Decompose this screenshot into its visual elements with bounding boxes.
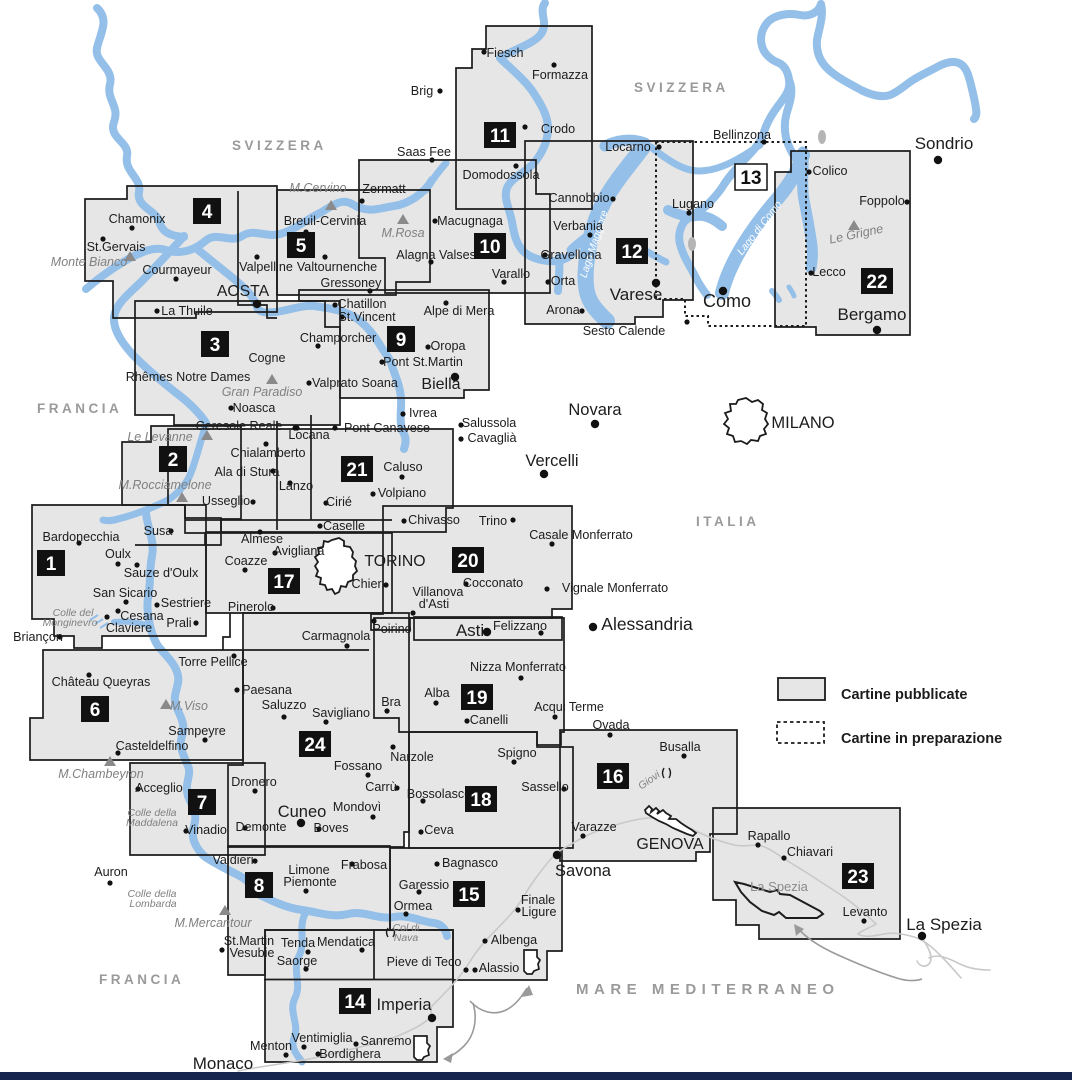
svg-text:17: 17 bbox=[273, 572, 294, 593]
svg-text:Saas Fee: Saas Fee bbox=[397, 145, 451, 159]
svg-text:Torre Pellice: Torre Pellice bbox=[178, 655, 247, 669]
svg-text:GENOVA: GENOVA bbox=[636, 836, 704, 853]
svg-text:Dronero: Dronero bbox=[231, 775, 277, 789]
svg-text:Chiavari: Chiavari bbox=[787, 845, 833, 859]
svg-text:M.Rosa: M.Rosa bbox=[381, 226, 424, 240]
svg-text:Orta: Orta bbox=[551, 274, 576, 288]
svg-text:Biella: Biella bbox=[421, 376, 460, 393]
svg-text:Courmayeur: Courmayeur bbox=[142, 263, 211, 277]
svg-text:Oulx: Oulx bbox=[105, 547, 132, 561]
svg-text:M.Cervino: M.Cervino bbox=[290, 181, 347, 195]
svg-text:Carrù: Carrù bbox=[365, 780, 397, 794]
svg-text:10: 10 bbox=[479, 237, 500, 258]
svg-text:Vesubie: Vesubie bbox=[230, 946, 275, 960]
svg-text:Alessandria: Alessandria bbox=[601, 614, 693, 634]
svg-text:Narzole: Narzole bbox=[390, 750, 433, 764]
svg-text:Como: Como bbox=[703, 291, 751, 311]
svg-text:Alba: Alba bbox=[424, 686, 449, 700]
svg-text:Mendatica: Mendatica bbox=[317, 935, 375, 949]
svg-text:Spigno: Spigno bbox=[497, 746, 536, 760]
svg-text:Usseglio: Usseglio bbox=[202, 494, 250, 508]
svg-text:Caselle: Caselle bbox=[323, 519, 365, 533]
svg-text:Piemonte: Piemonte bbox=[283, 875, 336, 889]
svg-text:Fossano: Fossano bbox=[334, 759, 382, 773]
svg-text:FRANCIA: FRANCIA bbox=[37, 401, 122, 416]
svg-text:Savigliano: Savigliano bbox=[312, 706, 370, 720]
svg-text:TORINO: TORINO bbox=[364, 553, 425, 570]
svg-text:Acceglio: Acceglio bbox=[135, 781, 183, 795]
svg-text:Busalla: Busalla bbox=[659, 740, 700, 754]
svg-text:Oropa: Oropa bbox=[430, 339, 465, 353]
svg-text:Menton: Menton bbox=[250, 1039, 292, 1053]
svg-text:1: 1 bbox=[46, 554, 57, 575]
svg-text:Arona: Arona bbox=[546, 303, 580, 317]
svg-text:Sassello: Sassello bbox=[521, 780, 569, 794]
svg-text:FRANCIA: FRANCIA bbox=[99, 972, 184, 987]
svg-text:5: 5 bbox=[296, 236, 307, 257]
svg-text:Bossolasco: Bossolasco bbox=[407, 787, 471, 801]
svg-text:Frabosa: Frabosa bbox=[341, 858, 387, 872]
svg-text:Garessio: Garessio bbox=[399, 878, 449, 892]
svg-text:Colico: Colico bbox=[813, 164, 848, 178]
svg-text:Alassio: Alassio bbox=[479, 961, 520, 975]
svg-text:Caluso: Caluso bbox=[383, 460, 422, 474]
svg-text:Avigliana: Avigliana bbox=[274, 544, 325, 558]
svg-text:Paesana: Paesana bbox=[242, 683, 292, 697]
svg-text:Monte Bianco: Monte Bianco bbox=[51, 255, 127, 269]
svg-text:Mondovì: Mondovì bbox=[333, 800, 381, 814]
svg-text:20: 20 bbox=[457, 551, 478, 572]
svg-text:Breuil-Cervinia: Breuil-Cervinia bbox=[284, 214, 367, 228]
svg-text:Valpelline: Valpelline bbox=[239, 260, 293, 274]
svg-text:14: 14 bbox=[344, 992, 366, 1013]
svg-text:Sondrio: Sondrio bbox=[915, 134, 974, 153]
svg-text:Alagna Valsesia: Alagna Valsesia bbox=[396, 248, 485, 262]
svg-text:Tenda: Tenda bbox=[281, 936, 315, 950]
svg-text:8: 8 bbox=[254, 876, 265, 897]
svg-text:2: 2 bbox=[168, 450, 179, 471]
svg-text:SVIZZERA: SVIZZERA bbox=[634, 80, 729, 95]
svg-text:Bagnasco: Bagnasco bbox=[442, 856, 498, 870]
svg-text:Cartine in preparazione: Cartine in preparazione bbox=[841, 731, 1002, 747]
svg-text:Locana: Locana bbox=[288, 428, 329, 442]
svg-text:Ivrea: Ivrea bbox=[409, 406, 437, 420]
svg-text:Ventimiglia: Ventimiglia bbox=[292, 1031, 353, 1045]
svg-text:M.Mercantour: M.Mercantour bbox=[174, 916, 252, 930]
svg-text:Vercelli: Vercelli bbox=[525, 452, 578, 470]
svg-text:6: 6 bbox=[90, 700, 101, 721]
svg-text:Levanto: Levanto bbox=[843, 905, 888, 919]
svg-text:11: 11 bbox=[490, 126, 511, 147]
svg-text:24: 24 bbox=[304, 735, 326, 756]
svg-text:Pinerolo: Pinerolo bbox=[228, 600, 274, 614]
svg-text:Ceresole Reale: Ceresole Reale bbox=[196, 419, 283, 433]
svg-text:MARE MEDITERRANEO: MARE MEDITERRANEO bbox=[576, 981, 840, 998]
svg-text:Pont Canavese: Pont Canavese bbox=[344, 421, 430, 435]
svg-text:Carmagnola: Carmagnola bbox=[302, 629, 371, 643]
svg-text:La Spezia: La Spezia bbox=[750, 879, 809, 894]
svg-text:9: 9 bbox=[396, 330, 407, 351]
svg-text:Brig: Brig bbox=[411, 84, 433, 98]
svg-text:St.Vincent: St.Vincent bbox=[338, 310, 396, 324]
svg-text:Crodo: Crodo bbox=[541, 122, 575, 136]
svg-text:Chatillon: Chatillon bbox=[337, 297, 386, 311]
svg-text:Trino: Trino bbox=[479, 514, 507, 528]
svg-text:Ceva: Ceva bbox=[424, 823, 453, 837]
svg-text:Sesto Calende: Sesto Calende bbox=[583, 324, 666, 338]
svg-text:Nava: Nava bbox=[394, 932, 419, 944]
svg-text:Volpiano: Volpiano bbox=[378, 486, 426, 500]
svg-text:Asti: Asti bbox=[456, 621, 484, 640]
svg-text:Prali: Prali bbox=[166, 616, 191, 630]
svg-text:Valtournenche: Valtournenche bbox=[297, 260, 377, 274]
svg-text:Cogne: Cogne bbox=[248, 351, 285, 365]
svg-text:Canelli: Canelli bbox=[470, 713, 509, 727]
svg-text:M.Rocciamelone: M.Rocciamelone bbox=[118, 478, 211, 492]
svg-text:Claviere: Claviere bbox=[106, 621, 152, 635]
svg-text:12: 12 bbox=[621, 242, 642, 263]
svg-text:Cuneo: Cuneo bbox=[278, 803, 327, 821]
svg-text:Formazza: Formazza bbox=[532, 68, 588, 82]
svg-text:Valprato Soana: Valprato Soana bbox=[312, 376, 398, 390]
svg-text:Bellinzona: Bellinzona bbox=[713, 128, 771, 142]
svg-text:Lugano: Lugano bbox=[672, 197, 714, 211]
svg-text:Acqui Terme: Acqui Terme bbox=[534, 700, 604, 714]
svg-text:4: 4 bbox=[202, 202, 213, 223]
svg-text:Varazze: Varazze bbox=[571, 820, 616, 834]
svg-text:Bordighera: Bordighera bbox=[319, 1047, 381, 1061]
svg-text:La Thuile: La Thuile bbox=[161, 304, 213, 318]
svg-text:d'Asti: d'Asti bbox=[419, 597, 449, 611]
svg-text:Gravellona: Gravellona bbox=[541, 248, 602, 262]
svg-text:Sauze d'Oulx: Sauze d'Oulx bbox=[124, 566, 199, 580]
svg-text:MILANO: MILANO bbox=[771, 414, 834, 432]
svg-text:Albenga: Albenga bbox=[491, 933, 537, 947]
svg-text:Fiesch: Fiesch bbox=[486, 46, 523, 60]
svg-text:16: 16 bbox=[602, 767, 623, 788]
svg-text:Château Queyras: Château Queyras bbox=[52, 675, 151, 689]
svg-text:Zermatt: Zermatt bbox=[362, 182, 406, 196]
svg-text:Susa: Susa bbox=[144, 524, 173, 538]
svg-text:Ala di Stura: Ala di Stura bbox=[214, 465, 279, 479]
svg-text:Cavaglià: Cavaglià bbox=[467, 431, 516, 445]
svg-text:18: 18 bbox=[470, 790, 491, 811]
svg-text:Rhêmes Notre Dames: Rhêmes Notre Dames bbox=[126, 370, 251, 384]
svg-text:La Spezia: La Spezia bbox=[906, 915, 982, 934]
svg-text:Chieri: Chieri bbox=[352, 577, 385, 591]
svg-text:Saluzzo: Saluzzo bbox=[262, 698, 307, 712]
svg-text:Lecco: Lecco bbox=[812, 265, 846, 279]
svg-text:7: 7 bbox=[197, 793, 208, 814]
svg-text:Chialamberto: Chialamberto bbox=[231, 446, 306, 460]
svg-text:AOSTA: AOSTA bbox=[217, 283, 270, 300]
svg-text:Salussola: Salussola bbox=[462, 416, 517, 430]
svg-text:Poirino: Poirino bbox=[372, 622, 411, 636]
svg-text:San Sicario: San Sicario bbox=[93, 586, 157, 600]
svg-text:Cannobbio: Cannobbio bbox=[549, 191, 610, 205]
svg-text:Chamonix: Chamonix bbox=[109, 212, 166, 226]
svg-text:Novara: Novara bbox=[568, 401, 622, 419]
svg-text:23: 23 bbox=[847, 867, 868, 888]
svg-text:Rapallo: Rapallo bbox=[748, 829, 791, 843]
svg-text:Domodossola: Domodossola bbox=[462, 168, 539, 182]
svg-text:Champorcher: Champorcher bbox=[300, 331, 376, 345]
svg-text:Monaco: Monaco bbox=[193, 1054, 253, 1073]
svg-text:SVIZZERA: SVIZZERA bbox=[232, 138, 327, 153]
svg-text:Lanzo: Lanzo bbox=[279, 479, 313, 493]
svg-text:Varallo: Varallo bbox=[492, 267, 530, 281]
svg-text:Savona: Savona bbox=[555, 862, 612, 880]
svg-text:Maddalena: Maddalena bbox=[126, 817, 178, 829]
svg-text:Casteldelfino: Casteldelfino bbox=[116, 739, 189, 753]
svg-text:Valdieri: Valdieri bbox=[212, 853, 253, 867]
svg-text:Ormea: Ormea bbox=[394, 899, 433, 913]
svg-text:Noasca: Noasca bbox=[233, 401, 276, 415]
svg-text:Vignale Monferrato: Vignale Monferrato bbox=[562, 581, 668, 595]
svg-text:Boves: Boves bbox=[313, 821, 348, 835]
svg-text:Locarno: Locarno bbox=[605, 140, 651, 154]
svg-text:22: 22 bbox=[866, 272, 887, 293]
svg-text:ITALIA: ITALIA bbox=[696, 514, 760, 529]
svg-text:21: 21 bbox=[346, 460, 368, 481]
svg-text:Le Levanne: Le Levanne bbox=[127, 430, 192, 444]
svg-text:19: 19 bbox=[466, 688, 487, 709]
svg-text:Sampeyre: Sampeyre bbox=[168, 724, 225, 738]
svg-text:Bra: Bra bbox=[381, 695, 401, 709]
svg-text:3: 3 bbox=[210, 335, 221, 356]
svg-text:Lombarda: Lombarda bbox=[129, 898, 176, 910]
svg-text:Monginevro: Monginevro bbox=[43, 617, 98, 629]
svg-text:Bardonecchia: Bardonecchia bbox=[42, 530, 119, 544]
svg-text:Casale Monferrato: Casale Monferrato bbox=[529, 528, 633, 542]
svg-text:M.Chambeyron: M.Chambeyron bbox=[58, 767, 143, 781]
svg-text:Gran Paradiso: Gran Paradiso bbox=[222, 385, 303, 399]
svg-text:Verbania: Verbania bbox=[553, 219, 603, 233]
svg-text:13: 13 bbox=[740, 168, 761, 189]
svg-text:Vinadio: Vinadio bbox=[185, 823, 227, 837]
svg-text:Pieve di Teco: Pieve di Teco bbox=[387, 955, 462, 969]
svg-text:Sestriere: Sestriere bbox=[161, 596, 211, 610]
svg-text:Macugnaga: Macugnaga bbox=[437, 214, 503, 228]
svg-text:Saorge: Saorge bbox=[277, 954, 318, 968]
svg-text:Cartine pubblicate: Cartine pubblicate bbox=[841, 687, 968, 703]
svg-text:Briançon: Briançon bbox=[13, 630, 63, 644]
svg-text:Varese: Varese bbox=[610, 285, 663, 304]
svg-text:Bergamo: Bergamo bbox=[838, 305, 907, 324]
svg-text:Cirié: Cirié bbox=[326, 495, 352, 509]
svg-text:Alpe di Mera: Alpe di Mera bbox=[424, 304, 495, 318]
svg-text:St.Gervais: St.Gervais bbox=[87, 240, 146, 254]
svg-text:Ovada: Ovada bbox=[592, 718, 629, 732]
svg-text:Felizzano: Felizzano bbox=[493, 619, 547, 633]
svg-text:Pont St.Martin: Pont St.Martin bbox=[383, 355, 463, 369]
svg-text:M.Viso: M.Viso bbox=[170, 699, 208, 713]
svg-text:Nizza Monferrato: Nizza Monferrato bbox=[470, 660, 566, 674]
svg-text:15: 15 bbox=[458, 885, 480, 906]
svg-text:Auron: Auron bbox=[94, 865, 128, 879]
svg-text:Ligure: Ligure bbox=[521, 905, 556, 919]
svg-text:Coazze: Coazze bbox=[225, 554, 268, 568]
svg-text:Foppolo: Foppolo bbox=[859, 194, 905, 208]
svg-text:Demonte: Demonte bbox=[235, 820, 286, 834]
svg-text:Chivasso: Chivasso bbox=[408, 513, 460, 527]
svg-text:Gressoney: Gressoney bbox=[321, 276, 383, 290]
svg-text:Sanremo: Sanremo bbox=[360, 1034, 411, 1048]
svg-text:Cocconato: Cocconato bbox=[463, 576, 523, 590]
svg-text:Imperia: Imperia bbox=[376, 996, 432, 1014]
